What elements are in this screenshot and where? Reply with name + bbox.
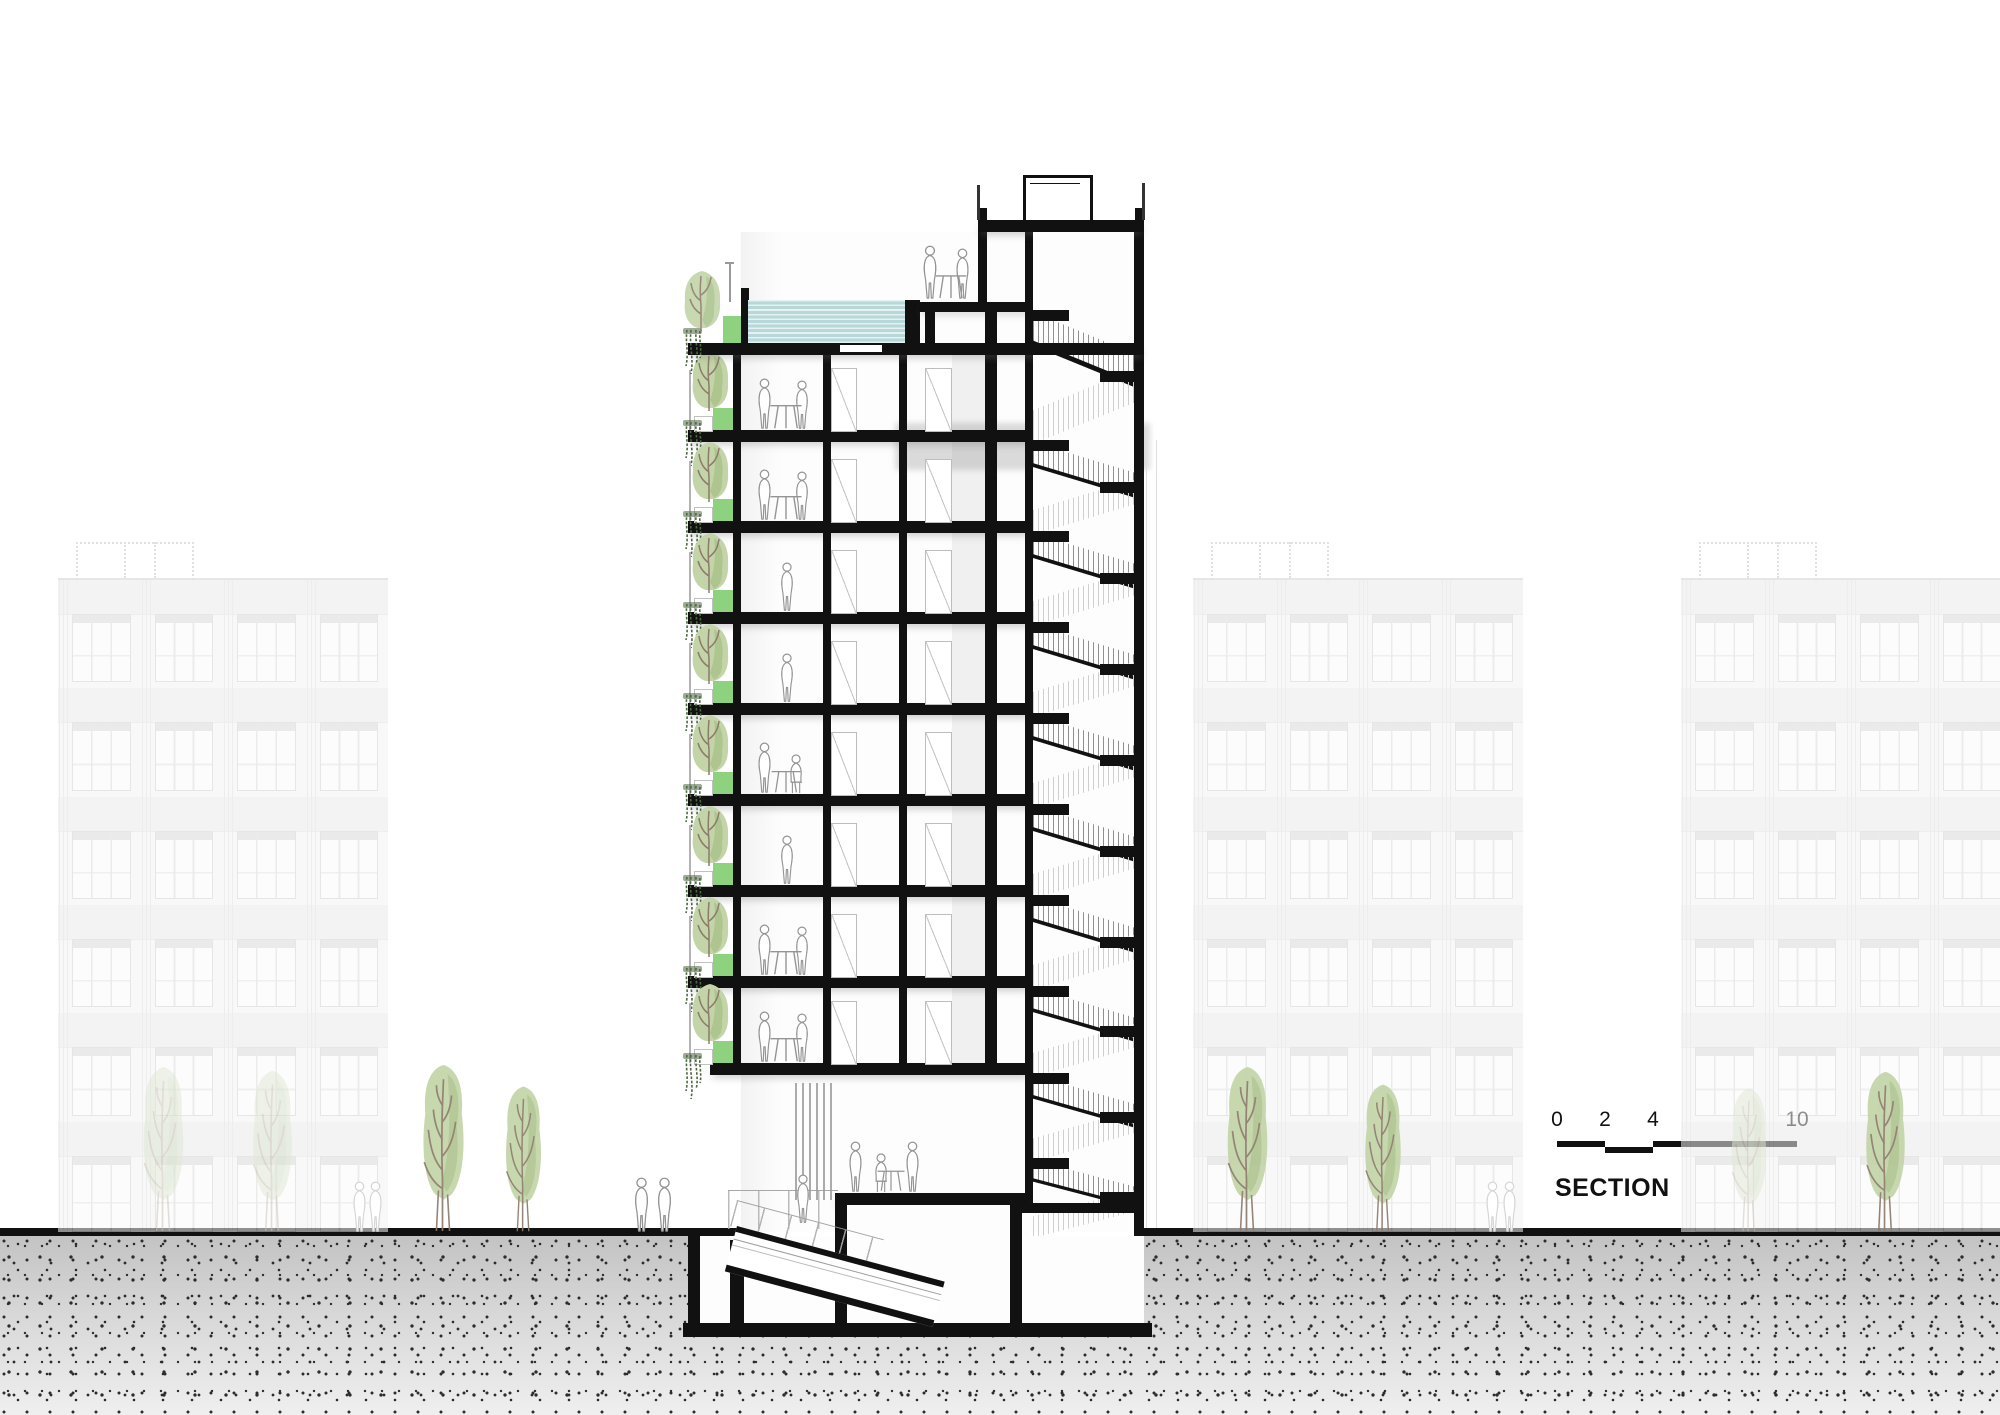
stair-landing-stub [1100, 1192, 1144, 1203]
rooftop-pool [748, 300, 905, 343]
elevator-shaft-wall [985, 806, 997, 885]
stair-landing-stub [1100, 755, 1144, 766]
elevator-shaft-wall [985, 355, 997, 430]
elevator-shaft-wall [985, 442, 997, 521]
balcony-tree [684, 981, 736, 1045]
room-person [775, 562, 800, 612]
vine-wrap [683, 328, 703, 380]
room-table [770, 770, 802, 794]
elevator-shaft-wall [985, 897, 997, 976]
antenna [1142, 183, 1145, 220]
hanging-vine [683, 1053, 703, 1105]
interior-column [899, 533, 907, 612]
planter [713, 772, 733, 794]
interior-column [899, 355, 907, 430]
elevator-shaft-wall [985, 624, 997, 703]
planter [713, 408, 733, 430]
person-figure [843, 1141, 868, 1193]
balcony-tree-wrap [684, 803, 736, 867]
stair-landing-stub [1100, 573, 1144, 584]
balcony-tree-wrap [684, 530, 736, 594]
interior-column [823, 533, 831, 612]
stair-landing-stub [1025, 440, 1069, 451]
balcony-tree [684, 803, 736, 867]
interior-column [823, 355, 831, 430]
stair-landing-stub [1025, 804, 1069, 815]
balcony-tree [684, 712, 736, 776]
planter [713, 499, 733, 521]
slab-recess [840, 345, 882, 352]
room-table [768, 495, 804, 521]
deck-column [985, 312, 997, 343]
stair-landing-stub [1100, 846, 1144, 857]
balcony-tree [684, 894, 736, 958]
person-figure [775, 835, 799, 885]
stair-landing-stub [1100, 371, 1144, 382]
balcony-tree-wrap [684, 621, 736, 685]
antenna [977, 185, 980, 220]
unit-door [831, 368, 857, 432]
stair-core-pooldeck-slab [1025, 343, 1144, 355]
stair-landing-stub [1025, 1158, 1069, 1169]
elevator-shaft-wall [985, 533, 997, 612]
planter [713, 863, 733, 885]
basement-core-slab [1010, 1203, 1144, 1213]
left-cut-wall [733, 343, 741, 1063]
room-table [768, 1037, 804, 1063]
balcony-tree-wrap [684, 894, 736, 958]
interior-column [823, 442, 831, 521]
pergola-frame [1023, 175, 1093, 228]
planter [713, 681, 733, 703]
balcony-tree-wrap [684, 712, 736, 776]
room-table [768, 950, 804, 976]
elevator-door [925, 1001, 952, 1065]
elevator-door [925, 914, 952, 978]
elevator-door [925, 823, 952, 887]
stair-landing-stub [1025, 986, 1069, 997]
interior-column [899, 897, 907, 976]
stair-landing-stub [1100, 1112, 1144, 1123]
basement-wall [1010, 1213, 1022, 1323]
unit-door [831, 914, 857, 978]
basement-left-wall [688, 1236, 700, 1331]
interior-column [899, 442, 907, 521]
interior-column [899, 806, 907, 885]
unit-door [831, 823, 857, 887]
table [768, 950, 804, 976]
interior-column [823, 715, 831, 794]
unit-door [831, 1001, 857, 1065]
table [934, 274, 968, 300]
planter [713, 954, 733, 976]
stair-landing-stub [1100, 664, 1144, 675]
planter [713, 1041, 733, 1063]
elevator-door [925, 732, 952, 796]
unit-door [831, 550, 857, 614]
stair-landing-stub [1025, 713, 1069, 724]
elevator-door [925, 459, 952, 523]
vine-wrap [683, 1053, 703, 1105]
person-figure [775, 562, 799, 612]
interior-column [899, 624, 907, 703]
balcony-tree [684, 530, 736, 594]
right-cut-wall [1134, 220, 1144, 1337]
interior-column [823, 897, 831, 976]
unit-door [831, 459, 857, 523]
balcony-tree-wrap [684, 981, 736, 1045]
elevator-shaft-wall [985, 715, 997, 794]
interior-column [899, 988, 907, 1063]
sectioned-building [0, 0, 2000, 1415]
balcony-tree [684, 621, 736, 685]
deck-column [925, 312, 935, 343]
elevator-door [925, 550, 952, 614]
room-person [775, 653, 800, 703]
elevator-door [925, 641, 952, 705]
table [768, 1037, 804, 1063]
right-facade-pipe [1146, 440, 1157, 1228]
balcony-tree-wrap [684, 439, 736, 503]
pergola-inner-line [1030, 183, 1080, 184]
deck-railing-top [725, 262, 734, 264]
balcony-tree [684, 439, 736, 503]
person-figure [775, 653, 799, 703]
lobby-floor-slab [835, 1193, 1030, 1205]
stair-landing-stub [1025, 895, 1069, 906]
basement-bottom-slab [683, 1323, 1152, 1337]
stair-landing-stub [1025, 1073, 1069, 1084]
table [770, 770, 802, 794]
table [768, 495, 804, 521]
elevator-shaft-wall [985, 988, 997, 1063]
unit-door [831, 732, 857, 796]
stair-landing-stub [1025, 531, 1069, 542]
lobby-person [900, 1141, 926, 1193]
stair-landing-stub [1100, 482, 1144, 493]
planter [713, 590, 733, 612]
room-person [775, 835, 800, 885]
section-drawing-canvas: 0 2 4 10 SECTION [0, 0, 2000, 1415]
deck-table [934, 274, 968, 300]
stair-landing-stub [1025, 310, 1069, 321]
floor-slab [710, 1063, 1033, 1075]
elevator-door [925, 368, 952, 432]
stair-landing-stub [1100, 1026, 1144, 1037]
stair-landing-stub [1025, 622, 1069, 633]
person-figure [900, 1141, 925, 1193]
room-table [768, 404, 804, 430]
balcony-tree [676, 268, 728, 332]
deck-railing-post [729, 262, 731, 302]
hanging-vine [683, 328, 703, 380]
interior-column [899, 715, 907, 794]
unit-door [831, 641, 857, 705]
lobby-person [843, 1141, 869, 1193]
stair-landing-stub [1100, 937, 1144, 948]
table [768, 404, 804, 430]
interior-column [823, 624, 831, 703]
interior-column [823, 806, 831, 885]
rooftop-tree-wrap [676, 268, 728, 332]
interior-column [823, 988, 831, 1063]
